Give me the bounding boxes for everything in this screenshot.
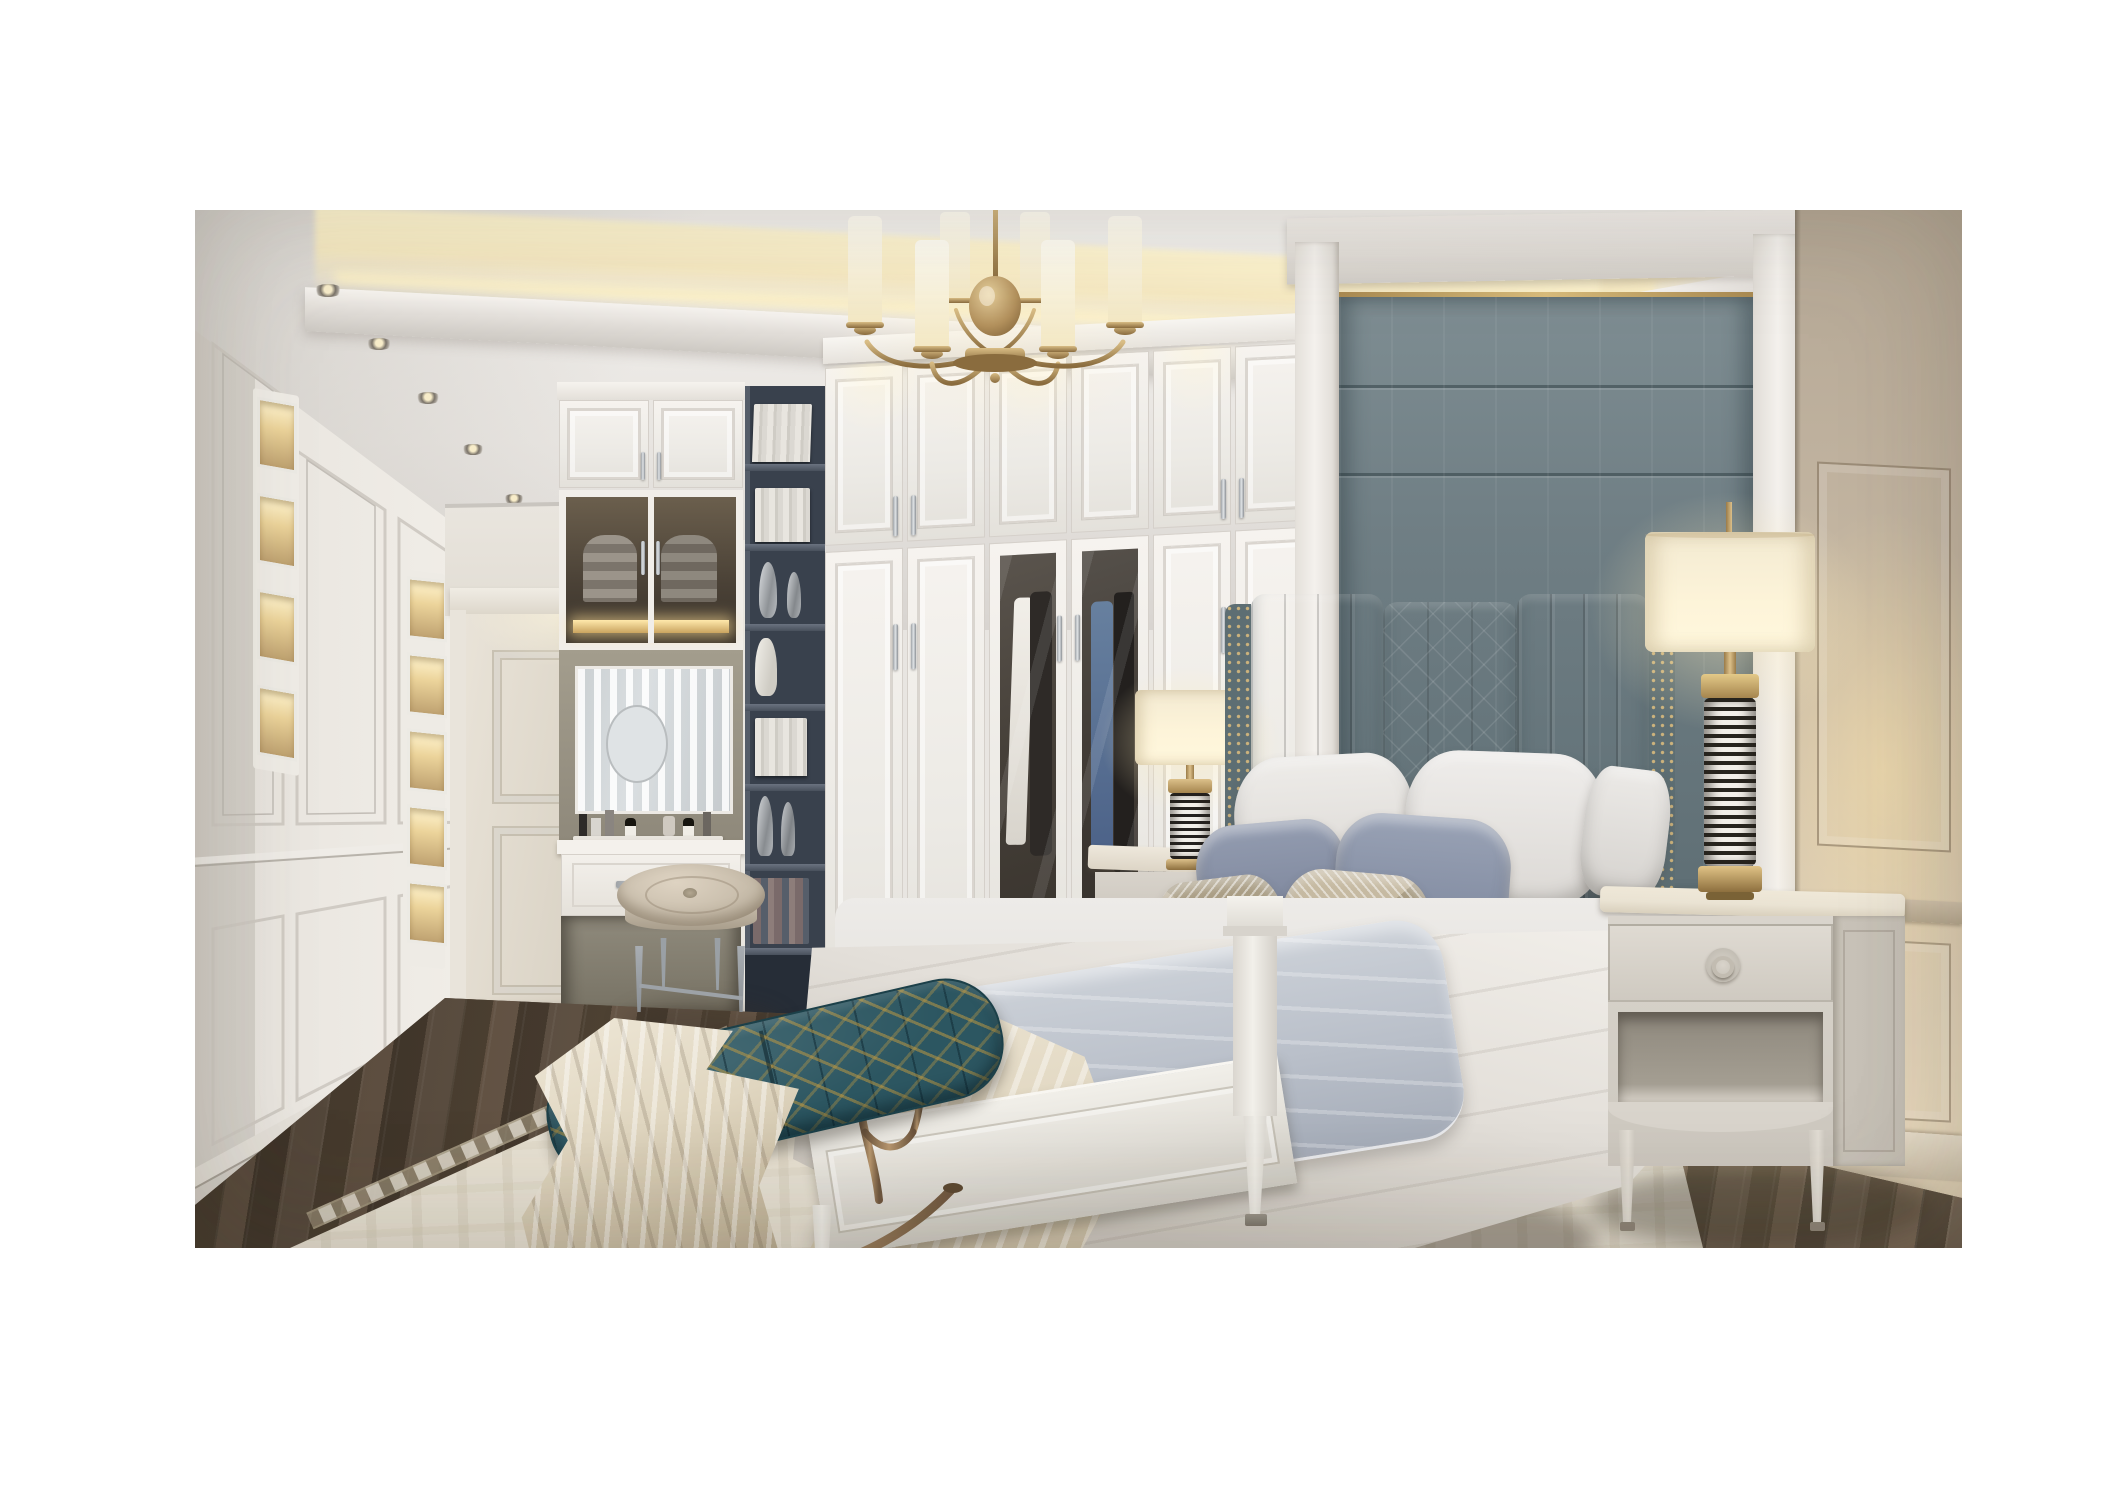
apron-arch: [1608, 1102, 1833, 1132]
shade-top-line: [1645, 532, 1815, 538]
wardrobe-handle: [911, 623, 916, 669]
door-moulding: [568, 409, 640, 479]
niche-light: [407, 880, 447, 946]
seat-button: [683, 888, 697, 898]
leg-ferrule: [1810, 1222, 1825, 1231]
cabinet-mullion: [648, 497, 654, 643]
post-ferrule: [1245, 1214, 1267, 1226]
silver-sculpture: [759, 562, 777, 618]
wardrobe-handle: [893, 624, 898, 670]
perfume-bottle: [703, 812, 711, 836]
silver-vase: [757, 796, 773, 856]
vanity-upper-door: [653, 400, 743, 488]
perfume-bottle: [579, 814, 587, 836]
niche-light: [257, 589, 297, 666]
white-vase: [755, 638, 777, 696]
vanity-handle: [657, 452, 661, 480]
niche-light: [407, 576, 447, 642]
open-shelf: [1618, 1012, 1823, 1102]
books-row: [752, 404, 812, 462]
silver-sculpture: [787, 572, 801, 618]
ring-pull: [1712, 956, 1734, 978]
wardrobe-handle: [911, 495, 916, 535]
lamp-finial: [1726, 502, 1732, 532]
vanity-upper-door: [559, 400, 649, 488]
bedwall-crown: [1287, 210, 1809, 285]
vanity-handle: [641, 541, 645, 575]
silver-vase: [781, 802, 795, 856]
wardrobe-handle: [1057, 615, 1062, 661]
niche-light: [257, 685, 297, 762]
vanity-display-cabinet: [559, 490, 743, 650]
door-casing-left: [450, 610, 466, 1013]
lighted-niche-column: [253, 388, 299, 776]
recessed-spotlight: [313, 284, 343, 297]
perfume-bottle: [591, 818, 601, 836]
door-moulding: [662, 409, 734, 479]
oval-mirror: [606, 705, 668, 783]
wardrobe-handle: [1075, 615, 1080, 661]
leg-ferrule: [1620, 1222, 1635, 1231]
nightstand-right: [1600, 878, 1910, 1208]
lamp-stem: [1186, 765, 1194, 779]
lamp-cap-brass: [1701, 674, 1759, 698]
post-shaft: [1233, 936, 1277, 1116]
bed-corner-post: [1223, 896, 1287, 1232]
post-leg: [1237, 1116, 1273, 1216]
lamp-cap-brass: [1168, 779, 1212, 793]
shelf-board: [745, 704, 825, 711]
lamp-base-brass: [1698, 866, 1762, 892]
vanity-mirror: [575, 666, 733, 814]
books-row: [755, 718, 807, 776]
wardrobe-handle: [1239, 478, 1244, 518]
figurine: [683, 818, 694, 838]
shelf-board: [745, 464, 825, 471]
vanity-crown: [557, 382, 745, 400]
post-cap: [1227, 896, 1283, 926]
lamp-shade: [1645, 532, 1815, 652]
lighted-niche-column: [403, 570, 445, 969]
niche-light: [407, 728, 447, 794]
vanity-handle: [656, 541, 660, 575]
niche-light: [257, 493, 297, 570]
foot-bench: [515, 900, 1060, 1248]
niche-light: [407, 652, 447, 718]
shelf-board: [745, 784, 825, 791]
nightstand-side: [1833, 916, 1905, 1166]
post-collar: [1223, 926, 1287, 936]
drawer: [1608, 924, 1833, 1002]
table-lamp-right: [1640, 502, 1820, 902]
books-row: [755, 488, 810, 542]
lamp-striped-body: [1704, 698, 1756, 866]
folded-clothes-stack: [661, 535, 717, 602]
niche-light: [257, 397, 297, 474]
books-row: [783, 644, 813, 696]
side-moulding: [1843, 930, 1895, 1152]
lamp-stem: [1724, 652, 1736, 674]
shelf-board: [745, 624, 825, 631]
perfume-bottle: [663, 816, 675, 836]
page-background: [0, 0, 2127, 1496]
niche-light: [407, 804, 447, 870]
vanity-handle: [641, 452, 645, 480]
figurine: [625, 818, 636, 838]
lamp-base-plate: [1706, 892, 1754, 900]
shelf-board: [745, 544, 825, 551]
nightstand-front: [1608, 916, 1833, 1166]
perfume-bottle: [605, 810, 614, 836]
folded-clothes-stack: [583, 535, 637, 602]
chandelier: [815, 210, 1175, 462]
wardrobe-handle: [893, 496, 898, 536]
wardrobe-handle: [1221, 479, 1226, 519]
bedroom-render: [195, 210, 1962, 1248]
vanity-niche: [559, 650, 743, 840]
